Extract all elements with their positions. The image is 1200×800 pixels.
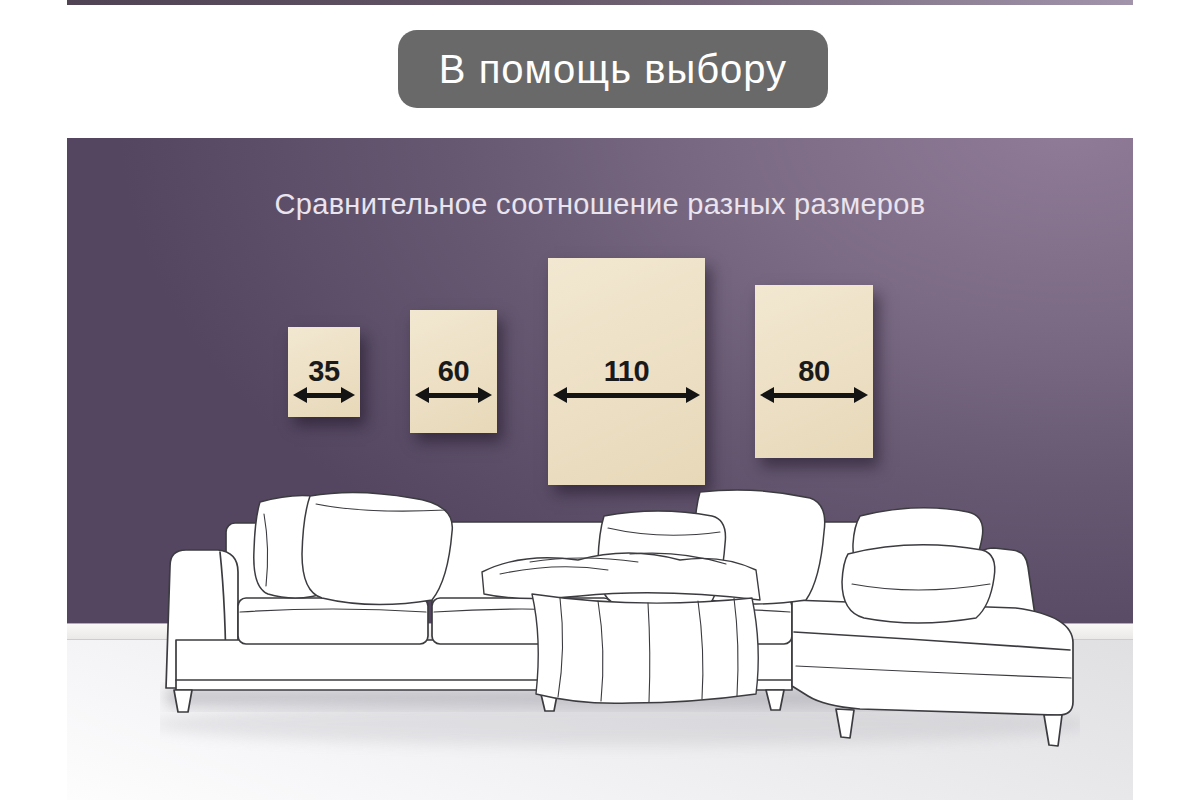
- arrowhead-right-icon: [478, 387, 492, 403]
- arrow-line: [304, 393, 344, 398]
- arrowhead-right-icon: [341, 387, 355, 403]
- size-panel-110: 110: [548, 258, 705, 485]
- size-value: 60: [410, 354, 497, 388]
- width-arrow-icon: [415, 387, 492, 403]
- size-value: 80: [755, 354, 873, 388]
- size-panel-80: 80: [755, 285, 873, 458]
- size-value: 35: [288, 354, 360, 388]
- width-arrow-icon: [553, 387, 700, 403]
- size-panel-60: 60: [410, 310, 497, 433]
- width-arrow-icon: [760, 387, 868, 403]
- header-pill-button[interactable]: В помощь выбору: [398, 30, 828, 108]
- arrow-line: [426, 393, 481, 398]
- width-arrow-icon: [293, 387, 355, 403]
- header-pill-label: В помощь выбору: [439, 47, 787, 92]
- room-scene: Сравнительное соотношение разных размеро…: [67, 138, 1133, 800]
- size-panel-35: 35: [288, 327, 360, 417]
- arrow-line: [564, 393, 689, 398]
- arrowhead-right-icon: [686, 387, 700, 403]
- scene-subtitle: Сравнительное соотношение разных размеро…: [67, 188, 1133, 221]
- size-value: 110: [548, 354, 705, 388]
- top-accent-bar: [67, 0, 1133, 5]
- arrowhead-right-icon: [854, 387, 868, 403]
- arrow-line: [771, 393, 857, 398]
- sofa-illustration: [160, 488, 1080, 762]
